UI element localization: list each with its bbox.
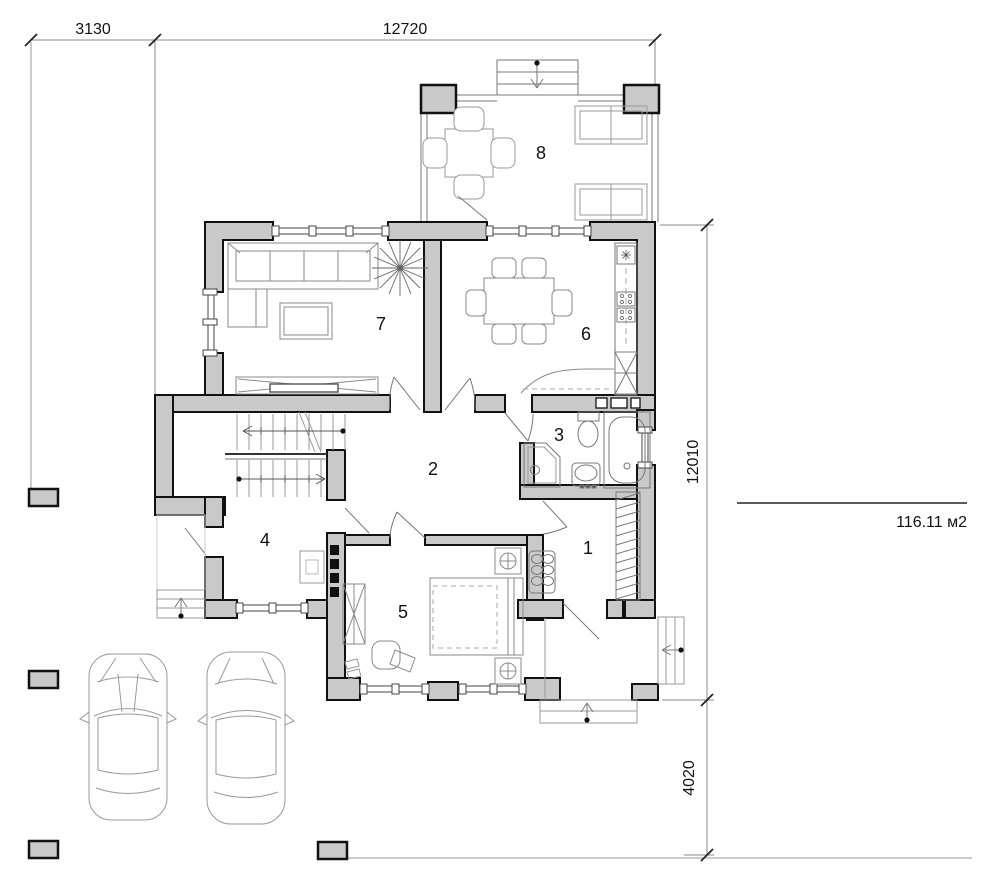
floor-plan-drawing: 3130 12720 12010 4020 116.11 м2 [0, 0, 1000, 890]
car-top-view-icon [80, 654, 176, 820]
wall-left-mid [205, 353, 223, 395]
fridge-icon [615, 352, 637, 394]
terrace [421, 60, 659, 222]
room-label-3: 3 [554, 425, 564, 445]
stair-break-line [299, 412, 321, 452]
wall-room5-sw-pier [327, 678, 360, 700]
room-label-8: 8 [536, 143, 546, 163]
kitchen-sink-icon [617, 246, 635, 264]
plant-icon [372, 240, 428, 296]
appliance-boxes [596, 398, 640, 408]
wall-room5-top-right [425, 535, 527, 545]
dim-label-3130: 3130 [75, 21, 111, 38]
bathroom-fixtures [524, 412, 650, 488]
coffee-table-icon [280, 303, 332, 339]
stair-arrow-down [239, 474, 325, 484]
fence-post-icon [29, 841, 58, 858]
car-top-view-icon [198, 652, 294, 824]
side-steps-icon [658, 617, 684, 684]
room-label-2: 2 [428, 459, 438, 479]
fence-posts [29, 489, 347, 859]
wall-room5-se-pier [525, 678, 560, 700]
wall-entry-bottom-pier [607, 600, 623, 618]
wall-room4-left-lower [205, 557, 223, 600]
fence-post-icon [318, 842, 347, 859]
toilet-icon [578, 412, 599, 447]
window-top-1 [272, 226, 389, 236]
dim-label-12010: 12010 [685, 440, 702, 485]
kitchen-dining-furniture [466, 243, 640, 408]
door-room5 [390, 512, 425, 538]
wall-room5-top-left [345, 535, 390, 545]
wall-corner-bottom-right [625, 600, 655, 618]
dim-ticks [25, 34, 713, 861]
wall-bath-top-left [475, 395, 505, 412]
window-room4-bottom [236, 603, 308, 613]
living-room-furniture [228, 240, 428, 394]
porch-column [632, 684, 658, 700]
door-room6 [445, 378, 475, 410]
door-entry-hall [543, 501, 567, 534]
nightstand-lamp-icon [495, 548, 521, 574]
wall-room4-bottom-left [205, 600, 237, 618]
door-room7 [390, 377, 421, 410]
wall-room5-s-pier [428, 682, 458, 700]
parked-cars [80, 652, 294, 824]
fence-post-icon [29, 671, 58, 688]
room-label-6: 6 [581, 324, 591, 344]
fence-post-icon [29, 489, 58, 506]
area-label: 116.11 м2 [896, 514, 967, 531]
room4-cabinet-icon [300, 551, 324, 583]
terrace-table-icon [423, 107, 515, 199]
corner-sofa-icon [228, 243, 378, 327]
floor-plan-page: 3130 12720 12010 4020 116.11 м2 [0, 0, 1000, 890]
west-steps-icon [157, 515, 205, 619]
bathtub-icon [604, 412, 650, 488]
wall-top-middle [388, 222, 487, 240]
desk-chair-icon [345, 641, 415, 679]
stair-arrow-up [243, 426, 343, 436]
dim-label-12720: 12720 [383, 21, 428, 38]
terrace-door-leaf [458, 196, 487, 220]
terrace-steps [497, 60, 578, 95]
room-label-5: 5 [398, 602, 408, 622]
room-label-4: 4 [260, 530, 270, 550]
nightstand-lamp-icon [495, 658, 521, 684]
wall-room5-west [327, 533, 345, 683]
door-bathroom [505, 413, 533, 441]
dim-label-4020: 4020 [681, 760, 698, 796]
window-top-2 [486, 226, 591, 236]
terrace-sofa-icon [575, 184, 647, 220]
wall-room7-room6 [424, 240, 441, 412]
wall-hall-top [155, 395, 390, 412]
door-main-entry [563, 603, 599, 639]
wall-room4-bottom-right [307, 600, 329, 618]
wall-room4-left-upper [205, 497, 223, 527]
column-icon [421, 85, 456, 113]
column-icon [624, 85, 659, 113]
tv-stand-icon [236, 377, 378, 394]
stove-icon [617, 292, 635, 322]
wardrobe-icon [343, 584, 365, 644]
door-room4-inner [345, 508, 369, 533]
door-room4-exterior [185, 528, 206, 555]
dining-table-icon [466, 258, 572, 344]
room-label-7: 7 [376, 314, 386, 334]
stair-treads-upper [237, 414, 345, 450]
double-bed-icon [430, 578, 523, 655]
entry-steps-icon [540, 618, 637, 723]
wall-stair-newel [327, 450, 345, 500]
window-left [203, 289, 217, 356]
walls [155, 222, 658, 700]
wall-entry-bottom-left [518, 600, 563, 618]
room-label-1: 1 [583, 538, 593, 558]
